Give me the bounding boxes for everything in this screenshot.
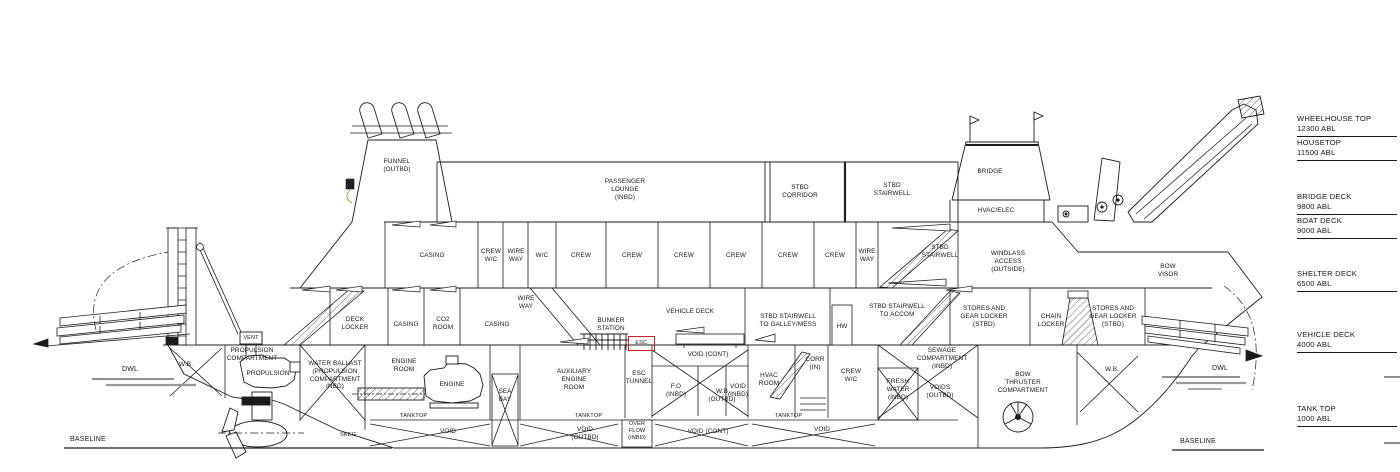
label-stores-gear-1: STORES AND GEAR LOCKER (STBD) (960, 305, 1007, 328)
ref-boat-deck: BOAT DECK 9000 ABL (1297, 216, 1397, 239)
label-void-outbd: VOID (OUTBD) (571, 426, 598, 442)
label-sewage: SEWAGE COMPARTMENT (INBD) (917, 347, 968, 370)
label-esc: ESC. (635, 340, 648, 347)
label-tanktop-3: TANKTOP (775, 413, 802, 420)
label-void-2: VOID (814, 426, 830, 434)
label-skeg: SKEG (340, 432, 356, 439)
label-tanktop-1: TANKTOP (400, 413, 427, 420)
label-void-cont-bottom: VOID (CONT) (688, 428, 729, 436)
label-crew-2: CREW (622, 252, 642, 260)
label-crew-wc-shelter: CREW W/C (481, 248, 501, 264)
label-stairwell-accom: STBD STAIRWELL TO ACCOM (869, 303, 925, 319)
label-tanktop-2: TANKTOP (575, 413, 602, 420)
label-crew-3: CREW (674, 252, 694, 260)
baseline-label-right: BASELINE (1180, 438, 1216, 446)
label-crew-4: CREW (726, 252, 746, 260)
dwl-label-right: DWL (1212, 365, 1228, 373)
linework (0, 0, 1400, 472)
label-hvac-room: HVAC ROOM (759, 372, 779, 388)
label-funnel: FUNNEL (OUTBD) (383, 158, 410, 174)
label-wc: W/C (536, 252, 549, 260)
label-casing-vd2: CASING (484, 321, 509, 329)
baseline-label-left: BASELINE (70, 436, 106, 444)
label-void-1: VOID (440, 428, 456, 436)
label-bridge: BRIDGE (977, 168, 1002, 176)
label-casing-vd1: CASING (393, 321, 418, 329)
label-engine: ENGINE (439, 381, 464, 389)
label-hw: HW (837, 323, 848, 331)
label-aux-engine-room: AUXILIARY ENGINE ROOM (557, 368, 591, 391)
label-propulsion-compartment: PROPULSION COMPARTMENT (227, 347, 278, 363)
label-vehicle-deck: VEHICLE DECK (666, 308, 714, 316)
ref-housetop: HOUSETOP 11500 ABL (1297, 138, 1397, 161)
label-stbd-stairwell-shelter: STBD STAIRWELL (922, 244, 959, 260)
label-wb-bow: W.B. (1105, 366, 1119, 374)
label-deck-locker: DECK LOCKER (342, 316, 369, 332)
label-void-cont-top: VOID (CONT) (688, 351, 729, 359)
ga-profile-drawing: WHEELHOUSE TOP 12300 ABL HOUSETOP 11500 … (0, 0, 1400, 472)
label-crew-5: CREW (778, 252, 798, 260)
label-crew-1: CREW (571, 252, 591, 260)
label-windlass-access: WINDLASS ACCESS (OUTSIDE) (991, 250, 1025, 273)
escape-symbol (346, 179, 354, 203)
label-bow-visor: BOW VISOR (1158, 263, 1178, 279)
label-co2-room: CO2 ROOM (433, 316, 453, 332)
label-chain-locker: CHAIN LOCKER (1038, 313, 1065, 329)
label-engine-room: ENGINE ROOM (391, 358, 416, 374)
label-stbd-corridor: STBD CORRIDOR (782, 184, 818, 200)
label-fo-inbd: F.O (INBD) (666, 383, 686, 399)
label-wire-way-3: WIRE WAY (517, 295, 534, 311)
label-fresh-water: FRESH WATER (INBD) (887, 378, 910, 401)
label-casing-shelter: CASING (419, 252, 444, 260)
bridge-structure (950, 112, 1050, 222)
label-stores-gear-2: STORES AND GEAR LOCKER (STBD) (1089, 305, 1136, 328)
label-water-ballast: WATER BALLAST (PROPULSION COMPARTMENT IN… (308, 360, 362, 391)
label-esc-tunnel: ESC TUNNEL (626, 370, 652, 386)
label-wb-stern: W.B. (179, 361, 193, 369)
label-voids-outbd: VOIDS (OUTBD) (926, 384, 953, 400)
ref-wheelhouse-top: WHEELHOUSE TOP 12300 ABL (1297, 114, 1397, 137)
ref-vehicle-deck: VEHICLE DECK 4000 ABL (1297, 330, 1397, 353)
vehicle-deck-partitions (284, 288, 1145, 348)
label-crew-6: CREW (825, 252, 845, 260)
label-propulsion: PROPULSION (247, 370, 290, 378)
label-overflow-inbd: OVER FLOW (INBD) (628, 421, 646, 441)
stern-gear (34, 228, 241, 347)
ref-bridge-deck: BRIDGE DECK 9800 ABL (1297, 192, 1397, 215)
dwl-label-left: DWL (122, 366, 138, 374)
label-crew-wc-lower: CREW W/C (841, 368, 861, 384)
bow-gear (1142, 286, 1262, 390)
label-bow-thruster: BOW THRUSTER COMPARTMENT (998, 371, 1049, 394)
ref-shelter-deck: SHELTER DECK 6500 ABL (1297, 269, 1397, 292)
lifeboat-davit (1058, 96, 1264, 222)
label-sea-bay: SEA BAY (498, 388, 511, 404)
label-passenger-lounge: PASSENGER LOUNGE (INBD) (605, 178, 645, 201)
label-hvac-elec: HVAC/ELEC (978, 207, 1015, 215)
label-wire-way-1: WIRE WAY (507, 248, 524, 264)
label-corr-in: CORR (IN) (805, 356, 824, 372)
label-stbd-stairwell-top: STBD STAIRWELL (874, 182, 911, 198)
label-vent: VENT (243, 335, 258, 342)
ref-tank-top: TANK TOP 1000 ABL (1297, 404, 1397, 427)
label-stairwell-galley: STBD STAIRWELL TO GALLEY/MESS (760, 313, 817, 329)
label-wire-way-2: WIRE WAY (858, 248, 875, 264)
label-bunker-station: BUNKER STATION (597, 317, 624, 333)
label-void-inbd: VOID (INBD) (728, 383, 748, 399)
